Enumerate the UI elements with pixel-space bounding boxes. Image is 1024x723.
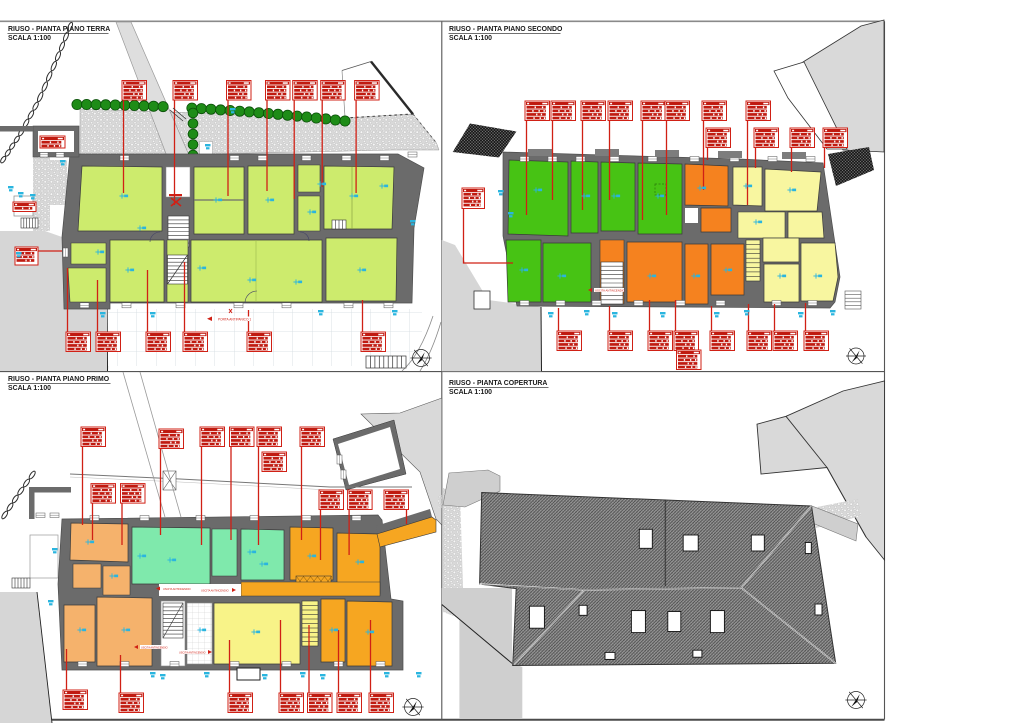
svg-text:SCALA 1:100: SCALA 1:100 xyxy=(8,35,51,42)
svg-text:SCALA 1:100: SCALA 1:100 xyxy=(449,389,492,396)
svg-text:SCALA 1:100: SCALA 1:100 xyxy=(8,385,51,392)
svg-text:SCALA 1:100: SCALA 1:100 xyxy=(449,35,492,42)
svg-text:USCITA ANTINCENDIO: USCITA ANTINCENDIO xyxy=(201,589,229,593)
svg-text:USCITA ANTINCENDIO: USCITA ANTINCENDIO xyxy=(595,289,626,293)
svg-text:RIUSO - PIANTA COPERTURA: RIUSO - PIANTA COPERTURA xyxy=(449,380,547,387)
svg-text:USCITA ANTINCENDIO: USCITA ANTINCENDIO xyxy=(163,587,191,591)
svg-text:USCITA ANTINCENDIO: USCITA ANTINCENDIO xyxy=(141,647,168,650)
svg-text:RIUSO - PIANTA PIANO TERRA: RIUSO - PIANTA PIANO TERRA xyxy=(8,26,110,33)
svg-text:PORTA ANTIPANICO 1: PORTA ANTIPANICO 1 xyxy=(218,318,251,322)
svg-text:USCITA ANTINCENDIO: USCITA ANTINCENDIO xyxy=(179,652,206,655)
svg-text:RIUSO - PIANTA PIANO PRIMO: RIUSO - PIANTA PIANO PRIMO xyxy=(8,376,110,383)
svg-text:RIUSO - PIANTA PIANO SECONDO: RIUSO - PIANTA PIANO SECONDO xyxy=(449,26,563,33)
